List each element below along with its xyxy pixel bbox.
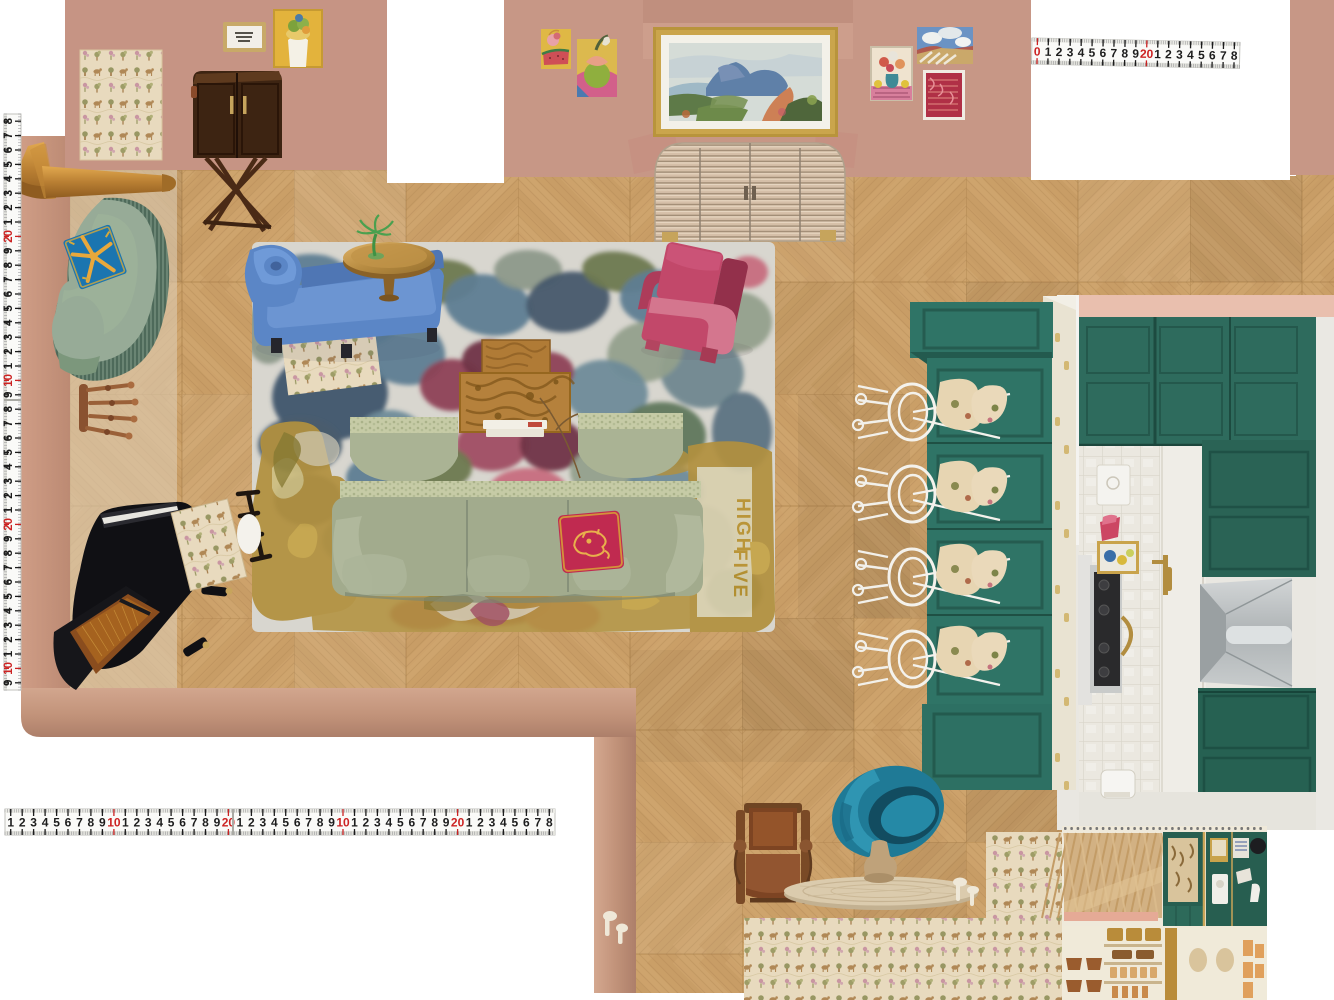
svg-text:3: 3: [3, 334, 15, 340]
svg-text:6: 6: [3, 291, 15, 297]
svg-text:20: 20: [3, 518, 15, 531]
svg-text:7: 7: [1220, 48, 1227, 62]
svg-text:9: 9: [1132, 47, 1139, 61]
svg-text:9: 9: [443, 816, 450, 830]
svg-text:9: 9: [3, 680, 15, 686]
svg-text:4: 4: [1187, 48, 1194, 62]
svg-text:7: 7: [420, 816, 427, 830]
svg-text:5: 5: [512, 816, 519, 830]
svg-text:1: 1: [122, 816, 129, 830]
svg-text:2: 2: [3, 204, 15, 210]
svg-text:6: 6: [3, 435, 15, 441]
svg-text:6: 6: [179, 816, 186, 830]
svg-text:4: 4: [3, 175, 15, 182]
svg-text:5: 5: [3, 593, 15, 600]
svg-text:1: 1: [351, 816, 358, 830]
svg-text:4: 4: [1078, 45, 1085, 59]
svg-text:8: 8: [3, 117, 15, 124]
svg-text:7: 7: [534, 816, 541, 830]
svg-text:2: 2: [363, 816, 370, 830]
svg-text:5: 5: [1198, 48, 1205, 62]
svg-text:6: 6: [3, 579, 15, 585]
svg-text:1: 1: [3, 362, 15, 369]
svg-text:3: 3: [1176, 48, 1183, 62]
svg-text:6: 6: [3, 147, 15, 153]
svg-text:10: 10: [336, 816, 350, 830]
svg-text:8: 8: [546, 816, 553, 830]
svg-text:3: 3: [30, 816, 37, 830]
svg-text:8: 8: [3, 549, 15, 556]
svg-text:2: 2: [3, 492, 15, 498]
svg-text:5: 5: [168, 816, 175, 830]
svg-text:FIVE: FIVE: [729, 549, 750, 599]
svg-text:5: 5: [3, 161, 15, 168]
svg-text:7: 7: [76, 816, 83, 830]
svg-text:4: 4: [500, 816, 507, 830]
svg-text:2: 2: [248, 816, 255, 830]
svg-text:3: 3: [145, 816, 152, 830]
svg-text:6: 6: [1099, 46, 1106, 60]
svg-text:8: 8: [1231, 49, 1238, 63]
svg-text:1: 1: [3, 218, 15, 225]
svg-text:4: 4: [42, 816, 49, 830]
svg-text:8: 8: [88, 816, 95, 830]
svg-text:3: 3: [3, 190, 15, 196]
svg-text:9: 9: [3, 248, 15, 254]
svg-text:9: 9: [328, 816, 335, 830]
svg-text:4: 4: [3, 319, 15, 326]
svg-text:9: 9: [99, 816, 106, 830]
svg-text:2: 2: [19, 816, 26, 830]
svg-text:5: 5: [1088, 46, 1095, 60]
svg-text:7: 7: [1110, 46, 1117, 60]
svg-text:HIGH: HIGH: [732, 498, 753, 554]
svg-text:5: 5: [3, 449, 15, 456]
svg-text:3: 3: [374, 816, 381, 830]
svg-text:8: 8: [431, 816, 438, 830]
svg-text:4: 4: [3, 463, 15, 470]
svg-text:6: 6: [523, 816, 530, 830]
svg-text:5: 5: [282, 816, 289, 830]
svg-text:10: 10: [3, 374, 15, 387]
svg-text:7: 7: [3, 276, 15, 282]
svg-text:4: 4: [3, 607, 15, 614]
svg-text:5: 5: [397, 816, 404, 830]
svg-text:8: 8: [1121, 46, 1128, 60]
svg-text:7: 7: [3, 420, 15, 426]
svg-text:8: 8: [3, 261, 15, 268]
svg-text:1: 1: [3, 506, 15, 513]
svg-text:4: 4: [271, 816, 278, 830]
svg-text:9: 9: [214, 816, 221, 830]
svg-text:3: 3: [3, 478, 15, 484]
svg-text:1: 1: [1045, 45, 1052, 59]
svg-text:20: 20: [3, 230, 15, 243]
svg-text:10: 10: [107, 816, 121, 830]
svg-text:3: 3: [1067, 45, 1074, 59]
svg-text:1: 1: [466, 816, 473, 830]
svg-text:20: 20: [451, 816, 465, 830]
svg-text:2: 2: [477, 816, 484, 830]
svg-text:9: 9: [3, 392, 15, 398]
svg-text:5: 5: [53, 816, 60, 830]
svg-text:6: 6: [408, 816, 415, 830]
svg-text:4: 4: [156, 816, 163, 830]
svg-text:2: 2: [133, 816, 140, 830]
svg-text:2: 2: [3, 348, 15, 354]
svg-text:1: 1: [3, 650, 15, 657]
svg-text:3: 3: [489, 816, 496, 830]
svg-text:6: 6: [1209, 48, 1216, 62]
svg-text:1: 1: [7, 816, 14, 830]
svg-text:3: 3: [259, 816, 266, 830]
svg-text:20: 20: [1140, 47, 1154, 61]
svg-text:6: 6: [294, 816, 301, 830]
svg-text:7: 7: [3, 132, 15, 138]
svg-text:7: 7: [3, 564, 15, 570]
svg-text:10: 10: [3, 662, 15, 675]
svg-text:9: 9: [3, 536, 15, 542]
svg-text:1: 1: [1154, 47, 1161, 61]
svg-text:5: 5: [3, 305, 15, 312]
svg-text:2: 2: [3, 636, 15, 642]
svg-text:3: 3: [3, 622, 15, 628]
svg-text:4: 4: [386, 816, 393, 830]
svg-text:7: 7: [305, 816, 312, 830]
svg-text:8: 8: [202, 816, 209, 830]
svg-text:0: 0: [1034, 45, 1041, 59]
svg-text:2: 2: [1165, 47, 1172, 61]
svg-text:1: 1: [237, 816, 244, 830]
svg-text:8: 8: [317, 816, 324, 830]
svg-text:8: 8: [3, 405, 15, 412]
svg-text:6: 6: [65, 816, 72, 830]
svg-text:7: 7: [191, 816, 198, 830]
svg-text:2: 2: [1056, 45, 1063, 59]
